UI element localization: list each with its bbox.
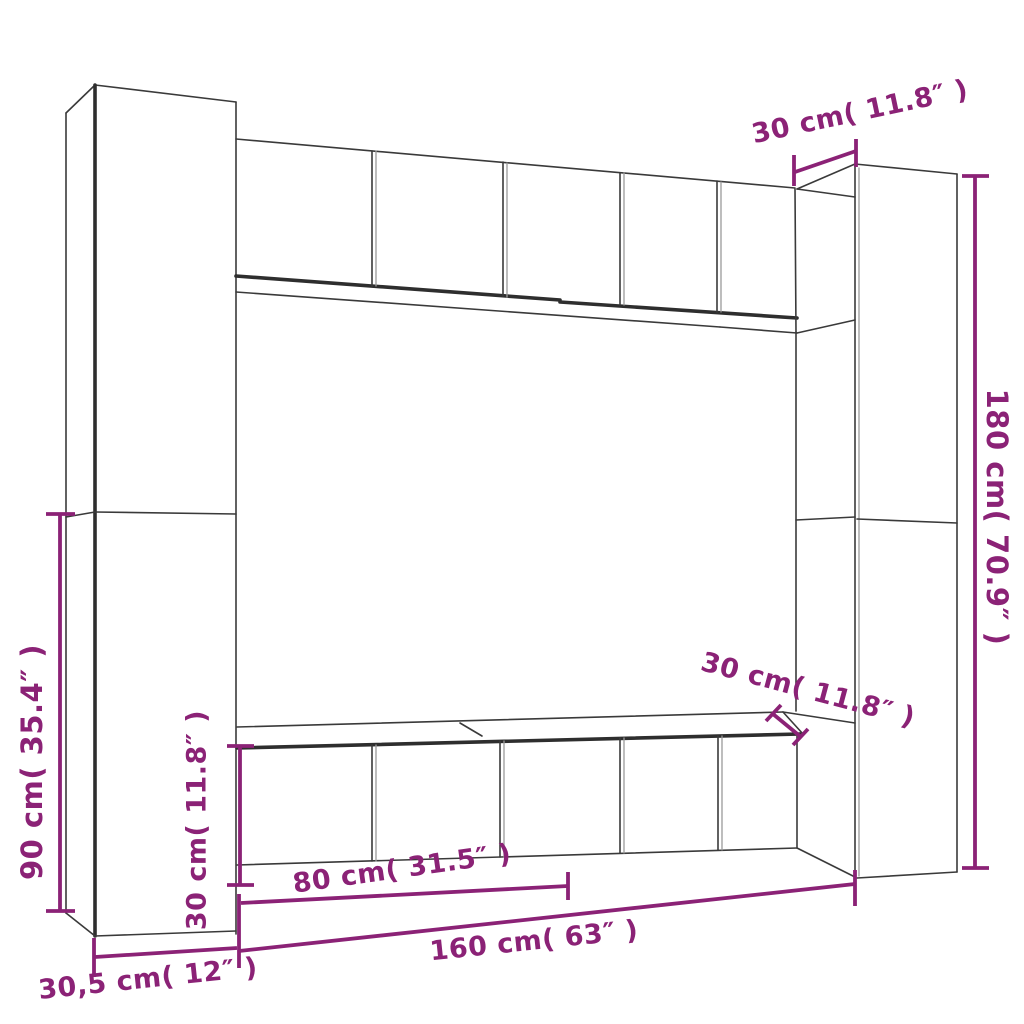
dim-label-right-height: 180 cm( 70.9″ )	[980, 389, 1014, 646]
right-column-cabinets	[796, 164, 957, 878]
dim-top-depth	[794, 139, 856, 186]
dim-middle-depth	[766, 705, 808, 745]
furniture-line-art	[0, 0, 1024, 1024]
dim-label-left-height: 90 cm( 35.4″ )	[15, 644, 49, 880]
dim-left-height	[46, 514, 75, 911]
top-cabinet-row	[236, 139, 855, 333]
furniture-dimension-diagram: 30 cm( 11.8″ ) 180 cm( 70.9″ ) 30 cm( 11…	[0, 0, 1024, 1024]
dim-label-bottom-left-height: 30 cm( 11.8″ )	[182, 710, 213, 930]
bottom-cabinet-row	[237, 712, 855, 865]
